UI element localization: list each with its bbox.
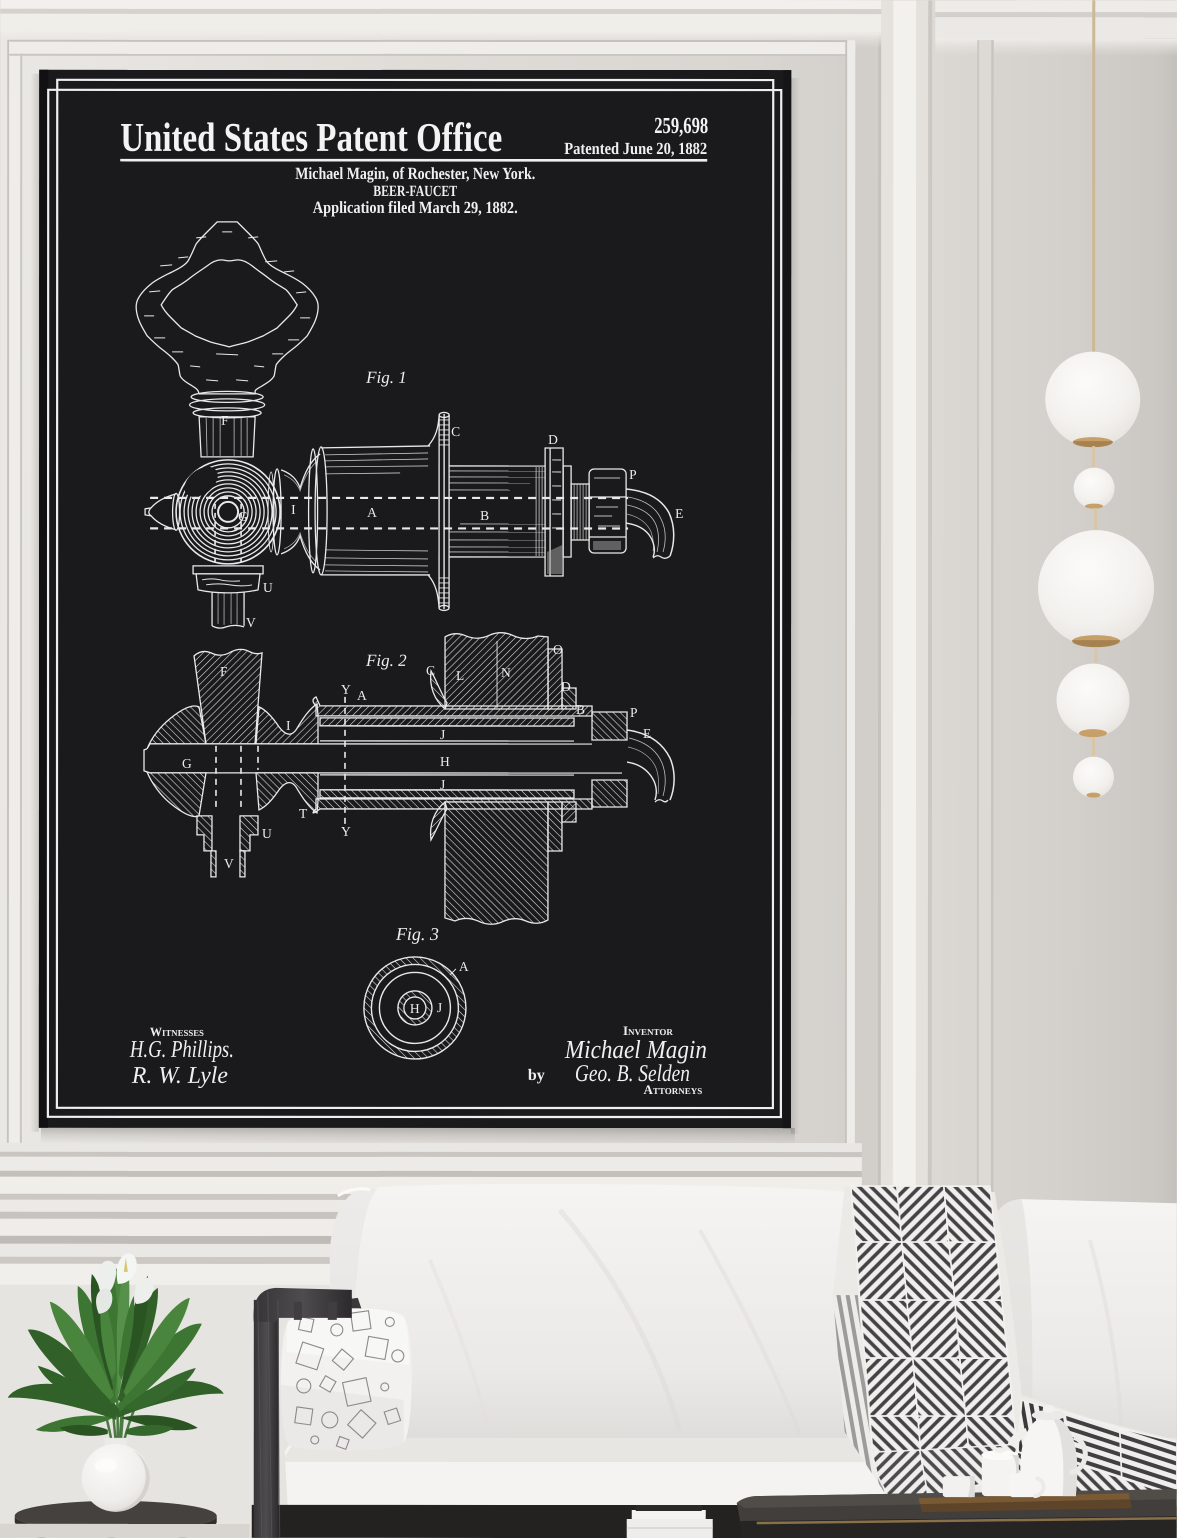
svg-text:Fig. 1: Fig. 1 <box>365 368 407 387</box>
svg-text:E: E <box>643 726 651 741</box>
svg-text:F: F <box>220 664 228 679</box>
svg-text:Michael Magin: Michael Magin <box>564 1035 707 1064</box>
svg-text:C: C <box>426 663 435 678</box>
svg-text:H: H <box>440 754 450 769</box>
svg-text:P: P <box>630 705 638 720</box>
svg-text:J: J <box>437 1000 442 1015</box>
svg-text:H: H <box>410 1001 420 1016</box>
svg-text:Fig. 3: Fig. 3 <box>395 924 439 944</box>
svg-text:E: E <box>675 506 683 521</box>
svg-text:C: C <box>451 424 460 439</box>
svg-text:U: U <box>263 580 273 595</box>
svg-text:Y: Y <box>341 682 351 697</box>
svg-text:R. W. Lyle: R. W. Lyle <box>131 1063 228 1089</box>
svg-text:Michael Magin, of Rochester, N: Michael Magin, of Rochester, New York. <box>295 164 535 183</box>
svg-text:Y: Y <box>341 824 351 839</box>
svg-text:N: N <box>501 665 511 680</box>
svg-text:by: by <box>528 1067 545 1084</box>
svg-text:United States Patent Office: United States Patent Office <box>120 114 502 160</box>
svg-text:P: P <box>629 467 637 482</box>
svg-text:G: G <box>182 756 192 771</box>
svg-text:F: F <box>221 413 229 428</box>
svg-text:I: I <box>286 718 291 733</box>
svg-text:G: G <box>238 509 248 524</box>
svg-text:A: A <box>357 688 367 703</box>
svg-text:T: T <box>299 806 308 821</box>
svg-text:259,698: 259,698 <box>654 113 708 138</box>
svg-text:Fig. 2: Fig. 2 <box>365 651 407 670</box>
svg-text:L: L <box>456 668 464 683</box>
svg-text:B: B <box>480 508 489 523</box>
svg-text:J: J <box>440 727 445 742</box>
svg-text:D: D <box>548 432 558 447</box>
svg-text:H.G. Phillips.: H.G. Phillips. <box>129 1037 234 1063</box>
svg-text:J: J <box>440 777 445 792</box>
svg-text:Patented June 20, 1882: Patented June 20, 1882 <box>564 139 707 158</box>
svg-text:O: O <box>553 642 563 657</box>
svg-text:A: A <box>459 959 469 974</box>
svg-text:V: V <box>246 615 256 630</box>
svg-text:A: A <box>367 505 377 520</box>
svg-text:D: D <box>561 679 571 694</box>
svg-text:U: U <box>262 826 272 841</box>
svg-text:Attorneys: Attorneys <box>644 1082 703 1097</box>
svg-text:B: B <box>576 702 585 717</box>
svg-text:Application filed March 29, 18: Application filed March 29, 1882. <box>313 198 518 217</box>
svg-text:I: I <box>291 502 296 517</box>
svg-text:V: V <box>224 856 234 871</box>
